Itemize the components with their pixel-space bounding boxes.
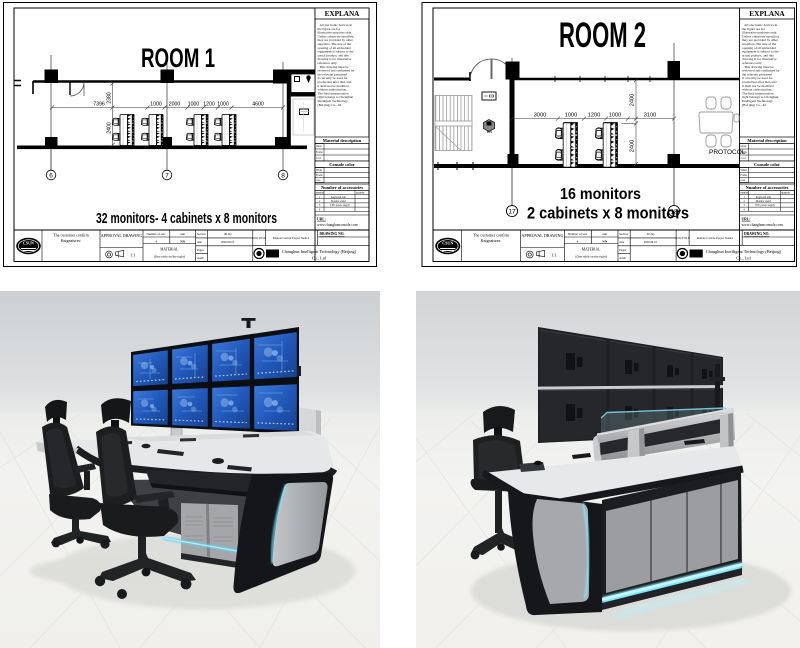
svg-text:4600: 4600	[252, 102, 264, 108]
svg-text:1:1: 1:1	[130, 253, 136, 258]
svg-text:unit: unit	[180, 232, 185, 236]
svg-text:CSUN: CSUN	[23, 240, 34, 245]
svg-text:ASSCTITLE: ASSCTITLE	[252, 237, 266, 240]
svg-text:2400: 2400	[630, 140, 636, 152]
svg-text:NN: NN	[180, 239, 185, 243]
svg-text:2380: 2380	[107, 92, 113, 104]
svg-text:3100: 3100	[644, 112, 656, 118]
svg-text:1200: 1200	[203, 102, 215, 108]
svg-text:32 monitors- 4 cabinets x 8 mo: 32 monitors- 4 cabinets x 8 monitors	[96, 211, 277, 227]
svg-text:17: 17	[508, 209, 516, 216]
svg-text:3000: 3000	[534, 112, 546, 118]
svg-text:All electronic devices in: All electronic devices in the figure are…	[318, 23, 356, 108]
svg-text:1000: 1000	[150, 102, 162, 108]
svg-text:APPROVAL DRAWING: APPROVAL DRAWING	[101, 233, 142, 238]
svg-text:7: 7	[165, 172, 169, 179]
svg-text:8: 8	[281, 172, 285, 179]
svg-text:&signatures:: &signatures:	[61, 238, 81, 243]
svg-text:16 monitors: 16 monitors	[560, 186, 641, 203]
svg-text:MATERIAL: MATERIAL	[160, 248, 178, 252]
svg-text:2 cabinets x 8 monitors: 2 cabinets x 8 monitors	[527, 205, 689, 223]
svg-text:2000: 2000	[169, 102, 181, 108]
svg-text:Number of accessories: Number of accessories	[321, 185, 363, 190]
svg-text:Number of sets: Number of sets	[147, 232, 167, 236]
svg-text:EXPLANA: EXPLANA	[325, 10, 361, 18]
svg-text:PROTOCOL: PROTOCOL	[709, 149, 746, 156]
svg-text:Material description: Material description	[323, 138, 362, 143]
svg-text:Remote Console Project Name1: Remote Console Project Name1	[273, 237, 310, 240]
svg-text:Console color: Console color	[329, 162, 355, 167]
svg-text:ROOM 2: ROOM 2	[559, 16, 646, 55]
svg-text:Elv: Elv	[487, 129, 493, 134]
svg-text:1000: 1000	[188, 102, 200, 108]
svg-text:Changhun Intelligent Technolog: Changhun Intelligent Technology (Beijing…	[282, 249, 357, 254]
svg-text:(One table on the right): (One table on the right)	[154, 254, 185, 258]
svg-text:2400: 2400	[630, 94, 636, 106]
svg-text:1000: 1000	[217, 102, 229, 108]
svg-text:6: 6	[49, 172, 53, 179]
svg-text:2400: 2400	[107, 122, 113, 134]
svg-text:4: 4	[155, 239, 157, 243]
svg-text:1200: 1200	[588, 112, 600, 118]
svg-text:1000: 1000	[609, 112, 621, 118]
svg-text:www.changhunconsole.com: www.changhunconsole.com	[317, 223, 358, 227]
svg-text:ROOM 1: ROOM 1	[141, 43, 215, 73]
svg-text:1000: 1000	[565, 112, 577, 118]
svg-text:DRAWING NO.: DRAWING NO.	[320, 232, 345, 236]
svg-text:URL:: URL:	[317, 218, 326, 222]
svg-text:7396: 7396	[93, 102, 105, 108]
